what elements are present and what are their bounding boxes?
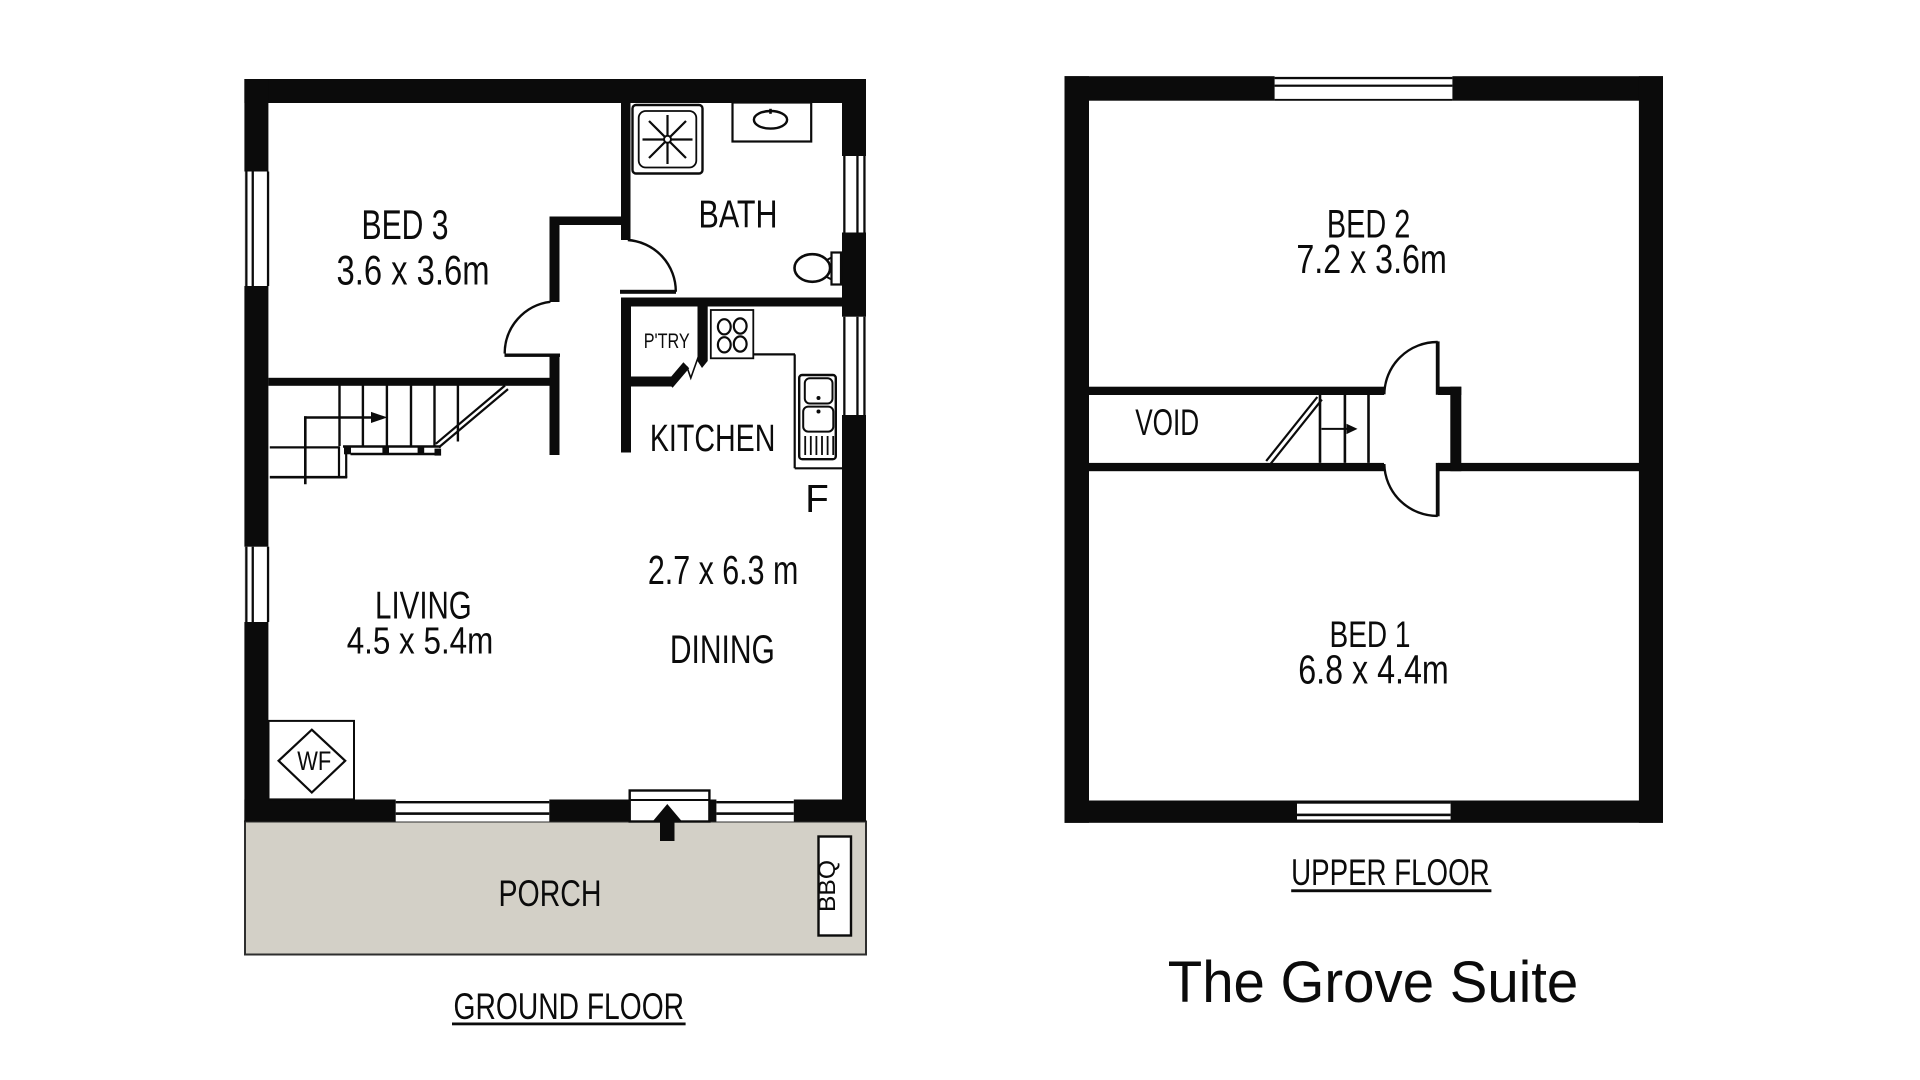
svg-text:KITCHEN: KITCHEN bbox=[650, 418, 776, 460]
svg-text:DINING: DINING bbox=[670, 628, 775, 672]
svg-text:PORCH: PORCH bbox=[499, 873, 602, 914]
svg-text:4.5 x 5.4m: 4.5 x 5.4m bbox=[347, 620, 494, 662]
svg-text:F: F bbox=[805, 478, 829, 521]
svg-text:The Grove Suite: The Grove Suite bbox=[1168, 950, 1579, 1015]
svg-text:3.6 x 3.6m: 3.6 x 3.6m bbox=[337, 247, 490, 294]
svg-text:GROUND FLOOR: GROUND FLOOR bbox=[454, 986, 685, 1027]
svg-text:2.7 x 6.3 m: 2.7 x 6.3 m bbox=[648, 547, 799, 593]
svg-text:UPPER FLOOR: UPPER FLOOR bbox=[1291, 852, 1490, 893]
svg-text:BED 3: BED 3 bbox=[362, 201, 449, 248]
svg-text:BBQ: BBQ bbox=[814, 860, 841, 912]
svg-text:7.2 x 3.6m: 7.2 x 3.6m bbox=[1296, 236, 1447, 282]
svg-text:BATH: BATH bbox=[699, 194, 778, 237]
svg-text:WF: WF bbox=[297, 746, 331, 776]
svg-text:P'TRY: P'TRY bbox=[644, 330, 690, 353]
svg-text:6.8 x 4.4m: 6.8 x 4.4m bbox=[1298, 646, 1449, 692]
svg-text:VOID: VOID bbox=[1135, 402, 1199, 443]
